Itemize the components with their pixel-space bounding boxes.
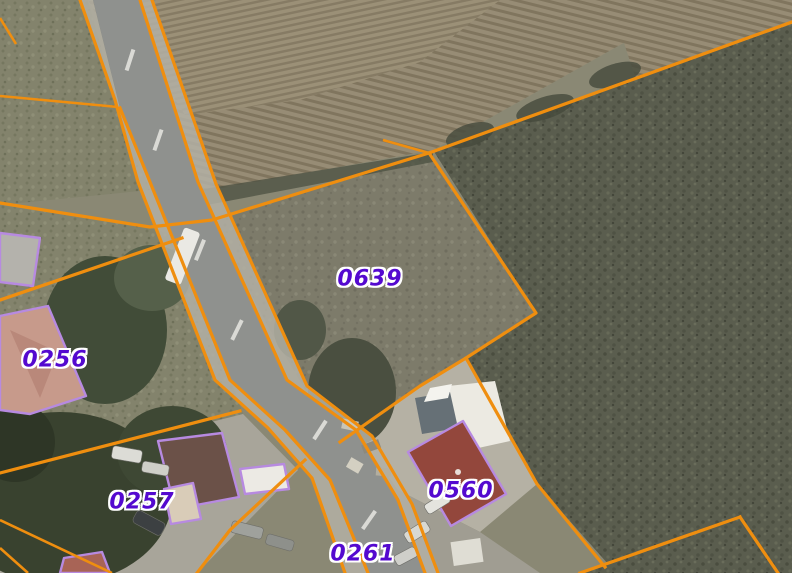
white-shed bbox=[450, 538, 483, 566]
building-grey-top-left bbox=[0, 233, 40, 286]
aerial-basemap bbox=[0, 0, 792, 573]
building-0560-chimney bbox=[455, 469, 461, 475]
building-0257-annex bbox=[164, 483, 201, 524]
building-white-small bbox=[240, 464, 289, 494]
map-viewport[interactable]: 063902560257056002616 bbox=[0, 0, 792, 573]
